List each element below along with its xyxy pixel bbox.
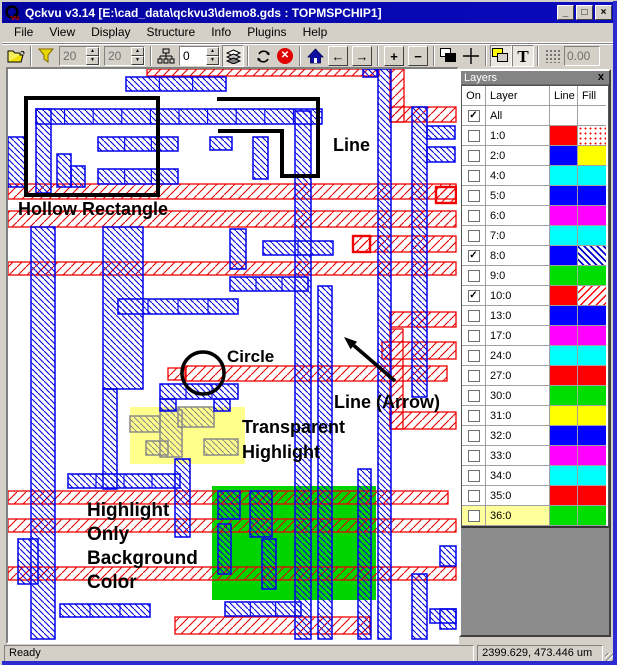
- spinbox-a: 20 ▲▼: [59, 46, 100, 66]
- col-layer-header: Layer: [486, 86, 550, 106]
- forward-button[interactable]: →: [352, 46, 372, 66]
- color-swatch: [550, 346, 577, 365]
- color-swatch: [578, 246, 606, 265]
- minimize-button[interactable]: _: [557, 5, 574, 20]
- layer-checkbox[interactable]: ✓: [468, 250, 480, 262]
- layer-row-2:0[interactable]: 2:0: [462, 146, 608, 166]
- layer-name: 9:0: [486, 266, 550, 286]
- layer-line-swatch[interactable]: [550, 146, 578, 166]
- layer-line-swatch[interactable]: [550, 386, 578, 406]
- spinbox-level-value[interactable]: 0: [180, 47, 206, 65]
- color-swatch: [578, 226, 606, 245]
- blue-hatched-shape: [318, 286, 332, 639]
- layer-on-cell: [462, 366, 486, 386]
- color-swatch: [578, 106, 606, 125]
- layer-fill-swatch[interactable]: [578, 226, 606, 246]
- layer-on-cell: [462, 126, 486, 146]
- color-swatch: [550, 286, 577, 305]
- layer-row-6:0[interactable]: 6:0: [462, 206, 608, 226]
- layer-name: 34:0: [486, 466, 550, 486]
- cursor-coordinates: 2399.629, 473.446 um: [477, 645, 603, 662]
- color-swatch: [578, 306, 606, 325]
- svg-text:vu: vu: [11, 15, 19, 21]
- layer-line-swatch[interactable]: [550, 106, 578, 126]
- layer-checkbox[interactable]: [468, 130, 480, 142]
- layer-on-cell: [462, 446, 486, 466]
- color-swatch: [550, 206, 577, 225]
- layer-checkbox[interactable]: [468, 150, 480, 162]
- toolbar-separator: [247, 46, 249, 66]
- overlap-squares-bw-icon: [440, 48, 458, 64]
- layer-row-10:0[interactable]: ✓10:0: [462, 286, 608, 306]
- title-bar[interactable]: vu Qckvu v3.14 [E:\cad_data\qckvu3\demo8…: [2, 2, 615, 23]
- canvas-annotation-label: Only: [87, 524, 130, 545]
- layer-checkbox[interactable]: ✓: [468, 110, 480, 122]
- color-swatch: [550, 506, 577, 525]
- window-title: Qckvu v3.14 [E:\cad_data\qckvu3\demo8.gd…: [25, 6, 555, 20]
- status-message: Ready: [4, 645, 474, 662]
- layer-fill-swatch[interactable]: [578, 306, 606, 326]
- layer-on-cell: [462, 266, 486, 286]
- color-swatch: [550, 166, 577, 185]
- layer-row-1:0[interactable]: 1:0: [462, 126, 608, 146]
- blue-hatched-shape: [57, 154, 71, 187]
- color-swatch: [578, 126, 606, 145]
- layer-row-30:0[interactable]: 30:0: [462, 386, 608, 406]
- toolbar-separator: [537, 46, 539, 66]
- layer-line-swatch[interactable]: [550, 286, 578, 306]
- color-swatch: [550, 466, 577, 485]
- layer-line-swatch[interactable]: [550, 426, 578, 446]
- stop-button[interactable]: ✕: [274, 45, 296, 67]
- layer-checkbox[interactable]: [468, 270, 480, 282]
- layer-line-swatch[interactable]: [550, 306, 578, 326]
- layer-name: 24:0: [486, 346, 550, 366]
- menu-help[interactable]: Help: [295, 23, 336, 42]
- layer-fill-swatch[interactable]: [578, 366, 606, 386]
- blue-hatched-shape: [295, 111, 311, 639]
- layer-checkbox[interactable]: [468, 190, 480, 202]
- highlighted-cad-shape: [178, 407, 214, 427]
- layers-panel-titlebar[interactable]: Layers x: [461, 71, 609, 85]
- layer-name: 4:0: [486, 166, 550, 186]
- rotate-arrows-icon: [255, 48, 272, 65]
- blue-hatched-shape: [262, 539, 276, 589]
- blue-hatched-shape: [98, 169, 178, 184]
- spinbox-b-value[interactable]: 20: [105, 47, 131, 65]
- blue-hatched-shape: [126, 77, 226, 91]
- text-display-button[interactable]: T: [512, 45, 534, 67]
- layer-checkbox[interactable]: [468, 350, 480, 362]
- layer-line-swatch[interactable]: [550, 406, 578, 426]
- layer-name: 5:0: [486, 186, 550, 206]
- layer-on-cell: [462, 506, 486, 526]
- layer-name: All: [486, 106, 550, 126]
- layer-line-swatch[interactable]: [550, 506, 578, 526]
- blue-hatched-shape: [210, 137, 232, 150]
- color-swatch: [578, 366, 606, 385]
- cad-drawing: LineHollow RectangleCircleLine (Arrow)Tr…: [8, 69, 457, 642]
- canvas-annotation-label: Line (Arrow): [334, 392, 440, 412]
- coordinate-readout: 0.00: [564, 46, 600, 66]
- layer-line-swatch[interactable]: [550, 126, 578, 146]
- blue-hatched-shape: [218, 491, 240, 519]
- layers-toggle-button[interactable]: [222, 45, 244, 67]
- menu-structure[interactable]: Structure: [139, 23, 204, 42]
- blue-hatched-shape: [412, 574, 427, 639]
- col-on-header: On: [462, 86, 486, 106]
- layer-fill-swatch[interactable]: [578, 186, 606, 206]
- layer-on-cell: [462, 486, 486, 506]
- color-swatch: [550, 246, 577, 265]
- menu-file[interactable]: File: [6, 23, 41, 42]
- layer-on-cell: ✓: [462, 246, 486, 266]
- layer-fill-swatch[interactable]: [578, 326, 606, 346]
- blue-hatched-shape: [175, 459, 190, 537]
- layer-on-cell: [462, 346, 486, 366]
- toolbar-separator: [485, 46, 487, 66]
- layer-fill-swatch[interactable]: [578, 346, 606, 366]
- color-swatch: [578, 146, 606, 165]
- layer-row-8:0[interactable]: ✓8:0: [462, 246, 608, 266]
- layer-row-31:0[interactable]: 31:0: [462, 406, 608, 426]
- layer-row-27:0[interactable]: 27:0: [462, 366, 608, 386]
- layer-checkbox[interactable]: [468, 410, 480, 422]
- blue-hatched-shape: [18, 539, 38, 584]
- menu-info[interactable]: Info: [203, 23, 239, 42]
- layer-name: 1:0: [486, 126, 550, 146]
- canvas-annotation-label: Line: [333, 135, 370, 155]
- color-swatch: [578, 386, 606, 405]
- color-swatch: [550, 426, 577, 445]
- layer-line-swatch[interactable]: [550, 246, 578, 266]
- blue-hatched-shape: [160, 399, 176, 411]
- layer-checkbox[interactable]: [468, 210, 480, 222]
- layer-row-5:0[interactable]: 5:0: [462, 186, 608, 206]
- color-swatch: [550, 186, 577, 205]
- layer-line-swatch[interactable]: [550, 186, 578, 206]
- refresh-button[interactable]: [252, 45, 274, 67]
- red-hatched-band: [147, 69, 379, 76]
- color-swatch: [578, 506, 606, 525]
- color-swatch: [550, 266, 577, 285]
- spinbox-b: 20 ▲▼: [104, 46, 145, 66]
- layers-panel-title: Layers: [464, 72, 596, 84]
- layer-name: 32:0: [486, 426, 550, 446]
- layer-name: 7:0: [486, 226, 550, 246]
- arrow-right-icon: →: [356, 49, 369, 64]
- layer-stack-icon: [225, 49, 242, 64]
- layer-checkbox[interactable]: [468, 170, 480, 182]
- blue-hatched-shape: [160, 384, 238, 399]
- fill-mode-button[interactable]: [490, 45, 512, 67]
- outline-mode-button[interactable]: [438, 45, 460, 67]
- layer-fill-swatch[interactable]: [578, 386, 606, 406]
- canvas-annotation-label: Circle: [227, 347, 274, 366]
- layer-line-swatch[interactable]: [550, 346, 578, 366]
- layer-row-24:0[interactable]: 24:0: [462, 346, 608, 366]
- spin-up-arrow[interactable]: ▲: [131, 47, 144, 56]
- cad-canvas[interactable]: LineHollow RectangleCircleLine (Arrow)Tr…: [6, 67, 459, 644]
- text-T-icon: T: [517, 48, 528, 65]
- layer-name: 30:0: [486, 386, 550, 406]
- blue-hatched-shape: [440, 609, 456, 629]
- layer-line-swatch[interactable]: [550, 326, 578, 346]
- layer-fill-swatch[interactable]: [578, 446, 606, 466]
- stop-x-icon: ✕: [277, 48, 293, 64]
- layer-fill-swatch[interactable]: [578, 106, 606, 126]
- color-swatch: [550, 306, 577, 325]
- layer-name: 6:0: [486, 206, 550, 226]
- layer-on-cell: [462, 206, 486, 226]
- layer-on-cell: [462, 406, 486, 426]
- overlap-squares-yellow-icon: [492, 48, 510, 64]
- blue-hatched-shape: [214, 399, 230, 411]
- layer-row-36:0[interactable]: 36:0: [462, 506, 608, 526]
- layer-row-33:0[interactable]: 33:0: [462, 446, 608, 466]
- color-swatch: [550, 386, 577, 405]
- color-swatch: [578, 446, 606, 465]
- layer-on-cell: ✓: [462, 106, 486, 126]
- blue-hatched-shape: [230, 229, 246, 269]
- layer-checkbox[interactable]: [468, 230, 480, 242]
- layer-row-35:0[interactable]: 35:0: [462, 486, 608, 506]
- spin-up-arrow[interactable]: ▲: [206, 47, 219, 56]
- color-swatch: [578, 426, 606, 445]
- layer-fill-swatch[interactable]: [578, 206, 606, 226]
- canvas-annotation-label: Background: [87, 548, 198, 569]
- layer-checkbox[interactable]: [468, 370, 480, 382]
- filter-button[interactable]: [35, 45, 57, 67]
- blue-hatched-shape: [253, 137, 268, 179]
- zoom-out-button[interactable]: −: [408, 46, 428, 66]
- layer-line-swatch[interactable]: [550, 366, 578, 386]
- layer-fill-swatch[interactable]: [578, 166, 606, 186]
- layer-name: 33:0: [486, 446, 550, 466]
- menu-bar: File View Display Structure Info Plugins…: [2, 23, 615, 43]
- layers-panel-filler: [461, 528, 609, 635]
- layer-row-4:0[interactable]: 4:0: [462, 166, 608, 186]
- app-window: vu Qckvu v3.14 [E:\cad_data\qckvu3\demo8…: [0, 0, 617, 665]
- color-swatch: [578, 466, 606, 485]
- layer-row-17:0[interactable]: 17:0: [462, 326, 608, 346]
- layer-name: 31:0: [486, 406, 550, 426]
- layer-name: 35:0: [486, 486, 550, 506]
- layer-on-cell: [462, 306, 486, 326]
- canvas-annotation-label: Hollow Rectangle: [18, 199, 168, 219]
- menu-plugins[interactable]: Plugins: [239, 23, 294, 42]
- color-swatch: [550, 146, 577, 165]
- color-swatch: [550, 126, 577, 145]
- spin-up-arrow[interactable]: ▲: [86, 47, 99, 56]
- layer-fill-swatch[interactable]: [578, 146, 606, 166]
- open-folder-icon: [7, 49, 26, 64]
- layer-name: 27:0: [486, 366, 550, 386]
- layer-line-swatch[interactable]: [550, 266, 578, 286]
- spin-down-arrow[interactable]: ▼: [131, 56, 144, 65]
- layers-table: On Layer Line Fill ✓All1:02:04:05:06:07:…: [461, 85, 609, 528]
- layer-name: 13:0: [486, 306, 550, 326]
- layer-fill-swatch[interactable]: [578, 406, 606, 426]
- layer-on-cell: [462, 146, 486, 166]
- layer-checkbox[interactable]: ✓: [468, 290, 480, 302]
- layer-row-9:0[interactable]: 9:0: [462, 266, 608, 286]
- color-swatch: [550, 446, 577, 465]
- toolbar-separator: [433, 46, 435, 66]
- layer-line-swatch[interactable]: [550, 166, 578, 186]
- grid-button[interactable]: [542, 45, 564, 67]
- crosshair-button[interactable]: [460, 45, 482, 67]
- blue-hatched-shape: [378, 69, 391, 639]
- layer-checkbox[interactable]: [468, 450, 480, 462]
- zoom-in-button[interactable]: +: [384, 46, 404, 66]
- layer-fill-swatch[interactable]: [578, 466, 606, 486]
- layer-row-13:0[interactable]: 13:0: [462, 306, 608, 326]
- layers-panel: Layers x On Layer Line Fill ✓All1:02:04:…: [459, 69, 611, 637]
- spin-down-arrow[interactable]: ▼: [206, 56, 219, 65]
- app-icon: vu: [5, 5, 21, 21]
- canvas-annotation-label: Highlight: [87, 500, 170, 521]
- layer-checkbox[interactable]: [468, 430, 480, 442]
- layer-on-cell: [462, 466, 486, 486]
- layer-row-7:0[interactable]: 7:0: [462, 226, 608, 246]
- hierarchy-tree-icon: [157, 48, 175, 64]
- color-swatch: [578, 406, 606, 425]
- home-view-button[interactable]: [304, 45, 326, 67]
- layer-checkbox[interactable]: [468, 330, 480, 342]
- color-swatch: [550, 486, 577, 505]
- layer-line-swatch[interactable]: [550, 226, 578, 246]
- blue-hatched-shape: [250, 491, 272, 537]
- layer-fill-swatch[interactable]: [578, 126, 606, 146]
- blue-hatched-shape: [363, 69, 377, 77]
- toolbar-separator: [150, 46, 152, 66]
- layer-fill-swatch[interactable]: [578, 506, 606, 526]
- red-hatched-band: [175, 617, 370, 634]
- layer-checkbox[interactable]: [468, 470, 480, 482]
- color-swatch: [578, 166, 606, 185]
- layer-row-All[interactable]: ✓All: [462, 106, 608, 126]
- color-swatch: [550, 366, 577, 385]
- funnel-icon: [38, 48, 54, 64]
- toolbar-separator: [30, 46, 32, 66]
- home-icon: [307, 48, 324, 64]
- window-frame-right: [613, 1, 617, 665]
- layer-name: 8:0: [486, 246, 550, 266]
- layer-row-32:0[interactable]: 32:0: [462, 426, 608, 446]
- blue-hatched-shape: [225, 602, 301, 616]
- color-swatch: [578, 186, 606, 205]
- layer-row-34:0[interactable]: 34:0: [462, 466, 608, 486]
- color-swatch: [550, 406, 577, 425]
- red-box: [436, 187, 456, 203]
- color-swatch: [550, 106, 577, 125]
- layer-on-cell: ✓: [462, 286, 486, 306]
- layer-on-cell: [462, 166, 486, 186]
- layer-fill-swatch[interactable]: [578, 266, 606, 286]
- toolbar: 20 ▲▼ 20 ▲▼ 0 ▲▼: [2, 43, 615, 68]
- highlighted-cad-shape: [130, 416, 160, 432]
- color-swatch: [578, 346, 606, 365]
- maximize-button[interactable]: □: [576, 5, 593, 20]
- layer-on-cell: [462, 326, 486, 346]
- grid-dots-icon: [545, 49, 561, 63]
- layer-checkbox[interactable]: [468, 490, 480, 502]
- layer-on-cell: [462, 186, 486, 206]
- layer-line-swatch[interactable]: [550, 446, 578, 466]
- col-line-header: Line: [550, 86, 578, 106]
- highlighted-cad-shape: [204, 439, 238, 455]
- minus-icon: −: [414, 49, 422, 64]
- layer-line-swatch[interactable]: [550, 466, 578, 486]
- canvas-annotation-label: Highlight: [242, 442, 320, 462]
- blue-hatched-shape: [427, 147, 455, 162]
- layer-line-swatch[interactable]: [550, 486, 578, 506]
- blue-hatched-shape: [358, 469, 371, 639]
- layers-panel-close-icon[interactable]: x: [596, 72, 606, 83]
- color-swatch: [578, 266, 606, 285]
- menu-display[interactable]: Display: [83, 23, 138, 42]
- layer-checkbox[interactable]: [468, 390, 480, 402]
- blue-hatched-shape: [71, 166, 85, 187]
- color-swatch: [578, 326, 606, 345]
- toolbar-separator: [377, 46, 379, 66]
- col-fill-header: Fill: [578, 86, 606, 106]
- canvas-annotation-label: Color: [87, 572, 137, 593]
- close-button[interactable]: ×: [595, 5, 612, 20]
- blue-hatched-shape: [8, 137, 26, 187]
- layer-on-cell: [462, 386, 486, 406]
- canvas-annotation-label: Transparent: [242, 417, 345, 437]
- layer-checkbox[interactable]: [468, 310, 480, 322]
- layer-line-swatch[interactable]: [550, 206, 578, 226]
- spinbox-a-value[interactable]: 20: [60, 47, 86, 65]
- red-hatched-band: [390, 412, 456, 429]
- blue-hatched-shape: [218, 524, 231, 574]
- arrow-left-icon: ←: [332, 49, 345, 64]
- layer-fill-swatch[interactable]: [578, 486, 606, 506]
- window-frame-bottom: [2, 661, 617, 665]
- layer-name: 10:0: [486, 286, 550, 306]
- crosshair-icon: [462, 47, 480, 65]
- toolbar-separator: [299, 46, 301, 66]
- spin-down-arrow[interactable]: ▼: [86, 56, 99, 65]
- blue-hatched-shape: [412, 107, 427, 397]
- layer-name: 17:0: [486, 326, 550, 346]
- layer-fill-swatch[interactable]: [578, 246, 606, 266]
- menu-view[interactable]: View: [41, 23, 83, 42]
- layers-table-header: On Layer Line Fill: [462, 86, 608, 106]
- blue-hatched-shape: [60, 604, 150, 617]
- color-swatch: [578, 486, 606, 505]
- layer-on-cell: [462, 226, 486, 246]
- hierarchy-button[interactable]: [155, 45, 177, 67]
- spinbox-level: 0 ▲▼: [179, 46, 220, 66]
- blue-hatched-shape: [440, 546, 456, 566]
- blue-hatched-shape: [36, 109, 51, 193]
- back-button[interactable]: ←: [328, 46, 348, 66]
- color-swatch: [550, 226, 577, 245]
- layer-fill-swatch[interactable]: [578, 286, 606, 306]
- highlighted-cad-shape: [146, 441, 168, 455]
- layer-name: 36:0: [486, 506, 550, 526]
- blue-hatched-shape: [98, 137, 178, 151]
- layer-checkbox[interactable]: [468, 510, 480, 522]
- open-file-button[interactable]: [5, 45, 27, 67]
- layer-on-cell: [462, 426, 486, 446]
- plus-icon: +: [390, 49, 398, 64]
- layer-fill-swatch[interactable]: [578, 426, 606, 446]
